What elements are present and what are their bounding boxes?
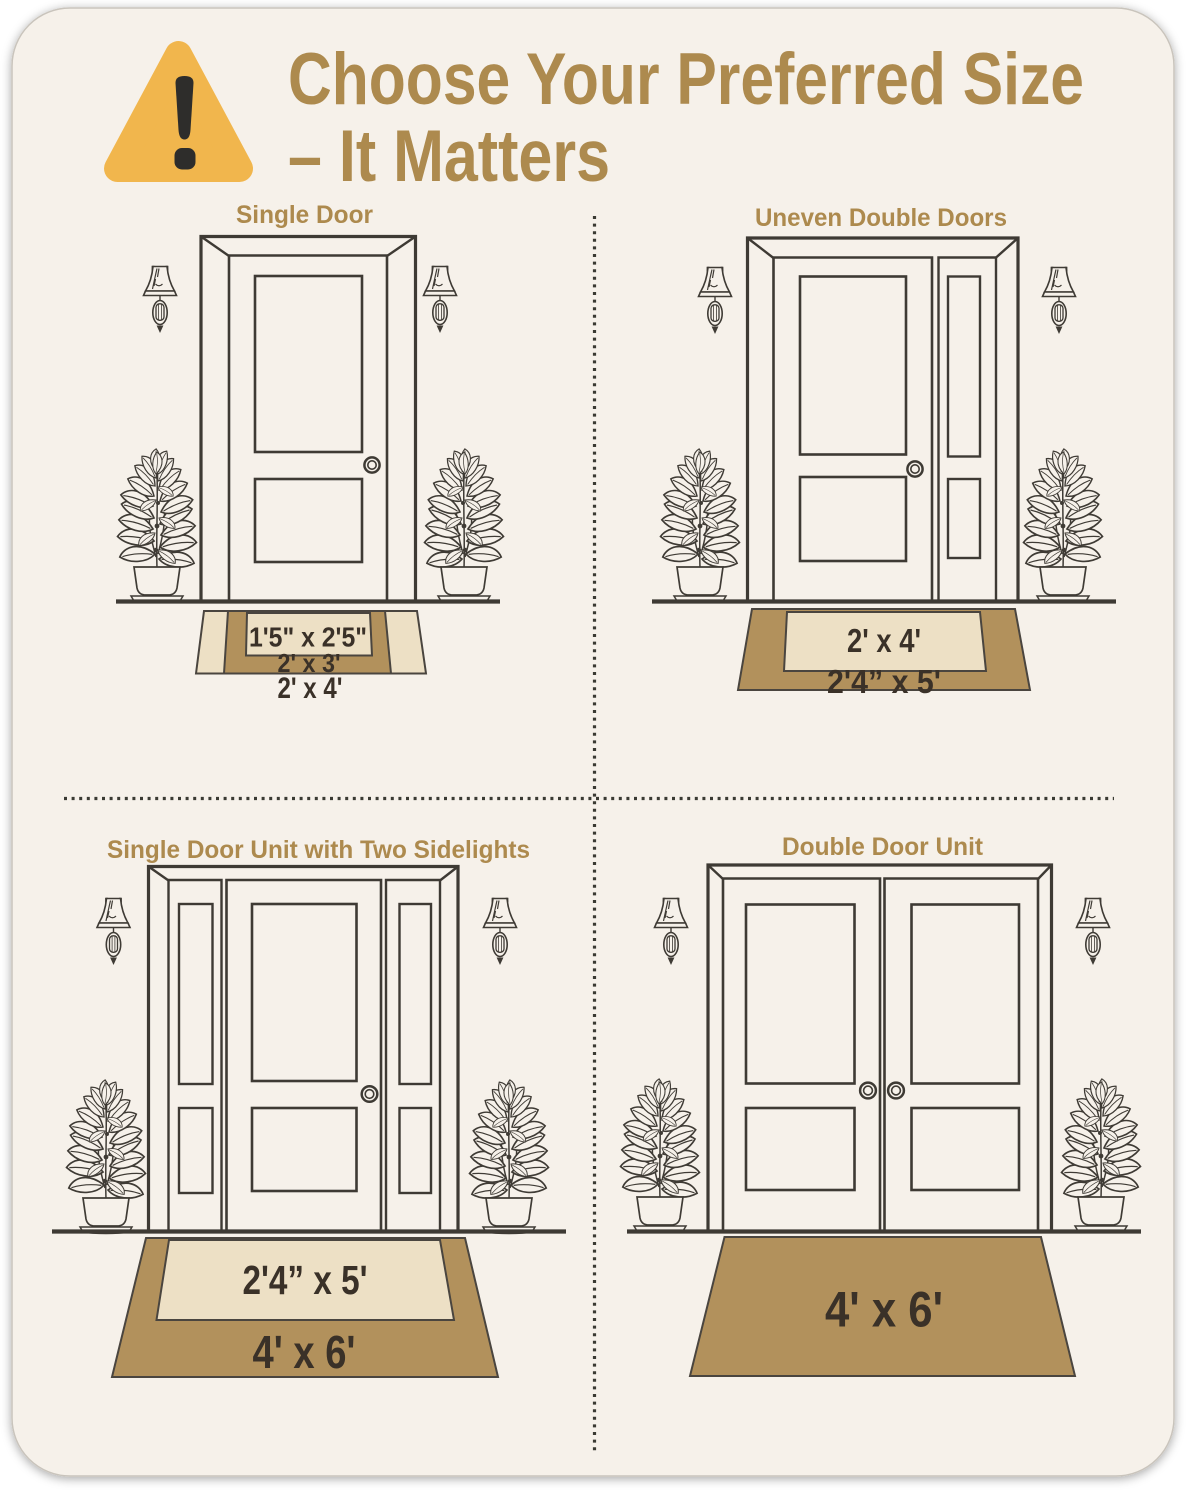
svg-text:2'4” x 5': 2'4” x 5': [243, 1257, 368, 1303]
svg-text:2' x 4': 2' x 4': [847, 622, 921, 659]
svg-text:Choose Your Preferred Size: Choose Your Preferred Size: [288, 39, 1084, 120]
svg-text:Uneven Double Doors: Uneven Double Doors: [755, 204, 1007, 232]
svg-text:4' x 6': 4' x 6': [825, 1282, 943, 1338]
svg-text:Double Door Unit: Double Door Unit: [782, 833, 984, 861]
svg-text:Single Door: Single Door: [236, 201, 373, 229]
svg-text:2'4” x 5': 2'4” x 5': [827, 663, 941, 700]
svg-text:Single Door Unit with Two Side: Single Door Unit with Two Sidelights: [107, 836, 530, 864]
svg-text:– It Matters: – It Matters: [288, 116, 610, 197]
svg-text:4' x 6': 4' x 6': [253, 1326, 356, 1378]
svg-text:2' x 4': 2' x 4': [278, 672, 343, 705]
